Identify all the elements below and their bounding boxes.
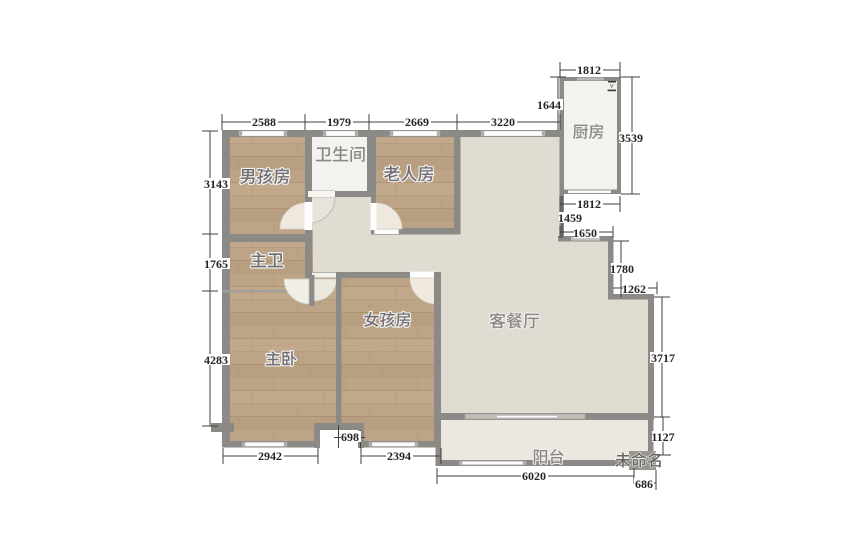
svg-text:1812: 1812 xyxy=(577,197,601,211)
svg-text:1127: 1127 xyxy=(651,430,674,444)
svg-text:2669: 2669 xyxy=(405,115,429,129)
svg-text:3717: 3717 xyxy=(651,351,675,365)
svg-text:1780: 1780 xyxy=(610,262,634,276)
svg-text:1459: 1459 xyxy=(558,211,582,225)
svg-text:1262: 1262 xyxy=(622,282,646,296)
svg-text:698: 698 xyxy=(341,430,359,444)
svg-text:1812: 1812 xyxy=(577,63,601,77)
svg-text:6020: 6020 xyxy=(522,469,546,483)
svg-text:4283: 4283 xyxy=(204,353,228,367)
svg-text:1644: 1644 xyxy=(537,98,561,112)
svg-text:3220: 3220 xyxy=(491,115,515,129)
svg-text:1979: 1979 xyxy=(327,115,351,129)
svg-text:1765: 1765 xyxy=(204,257,228,271)
svg-text:3143: 3143 xyxy=(204,177,228,191)
svg-text:3539: 3539 xyxy=(619,131,643,145)
svg-text:2588: 2588 xyxy=(252,115,276,129)
svg-text:1650: 1650 xyxy=(573,226,597,240)
svg-text:686: 686 xyxy=(635,477,653,491)
svg-text:2942: 2942 xyxy=(258,449,282,463)
svg-text:2394: 2394 xyxy=(387,449,411,463)
